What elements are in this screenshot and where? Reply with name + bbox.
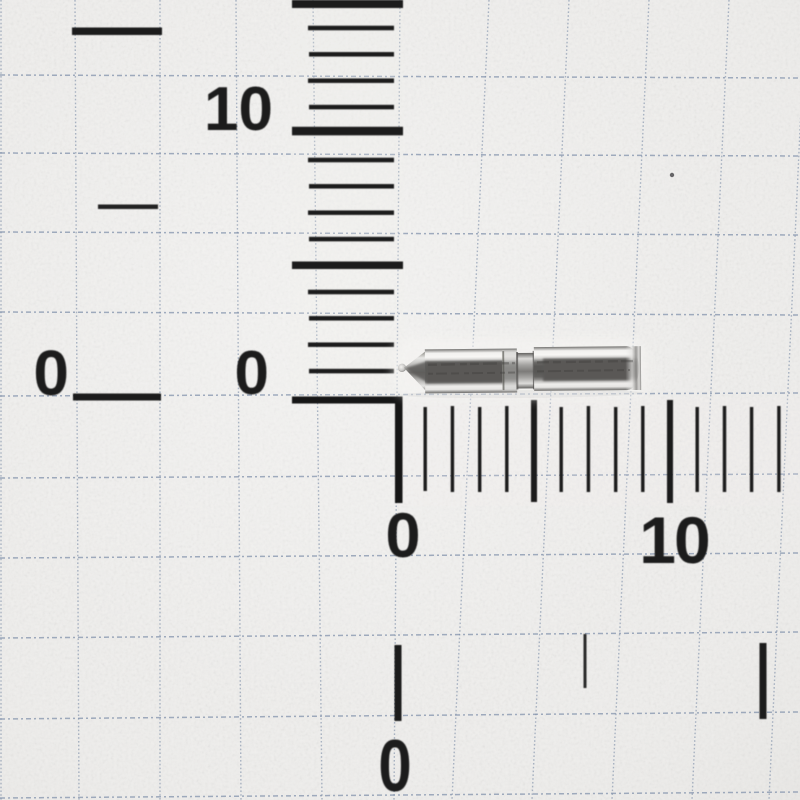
svg-text:0: 0 [378, 726, 411, 800]
svg-text:0: 0 [385, 501, 420, 571]
svg-text:0: 0 [33, 337, 69, 409]
svg-text:10: 10 [639, 503, 708, 577]
svg-text:10: 10 [204, 75, 273, 144]
svg-text:0: 0 [235, 339, 269, 408]
